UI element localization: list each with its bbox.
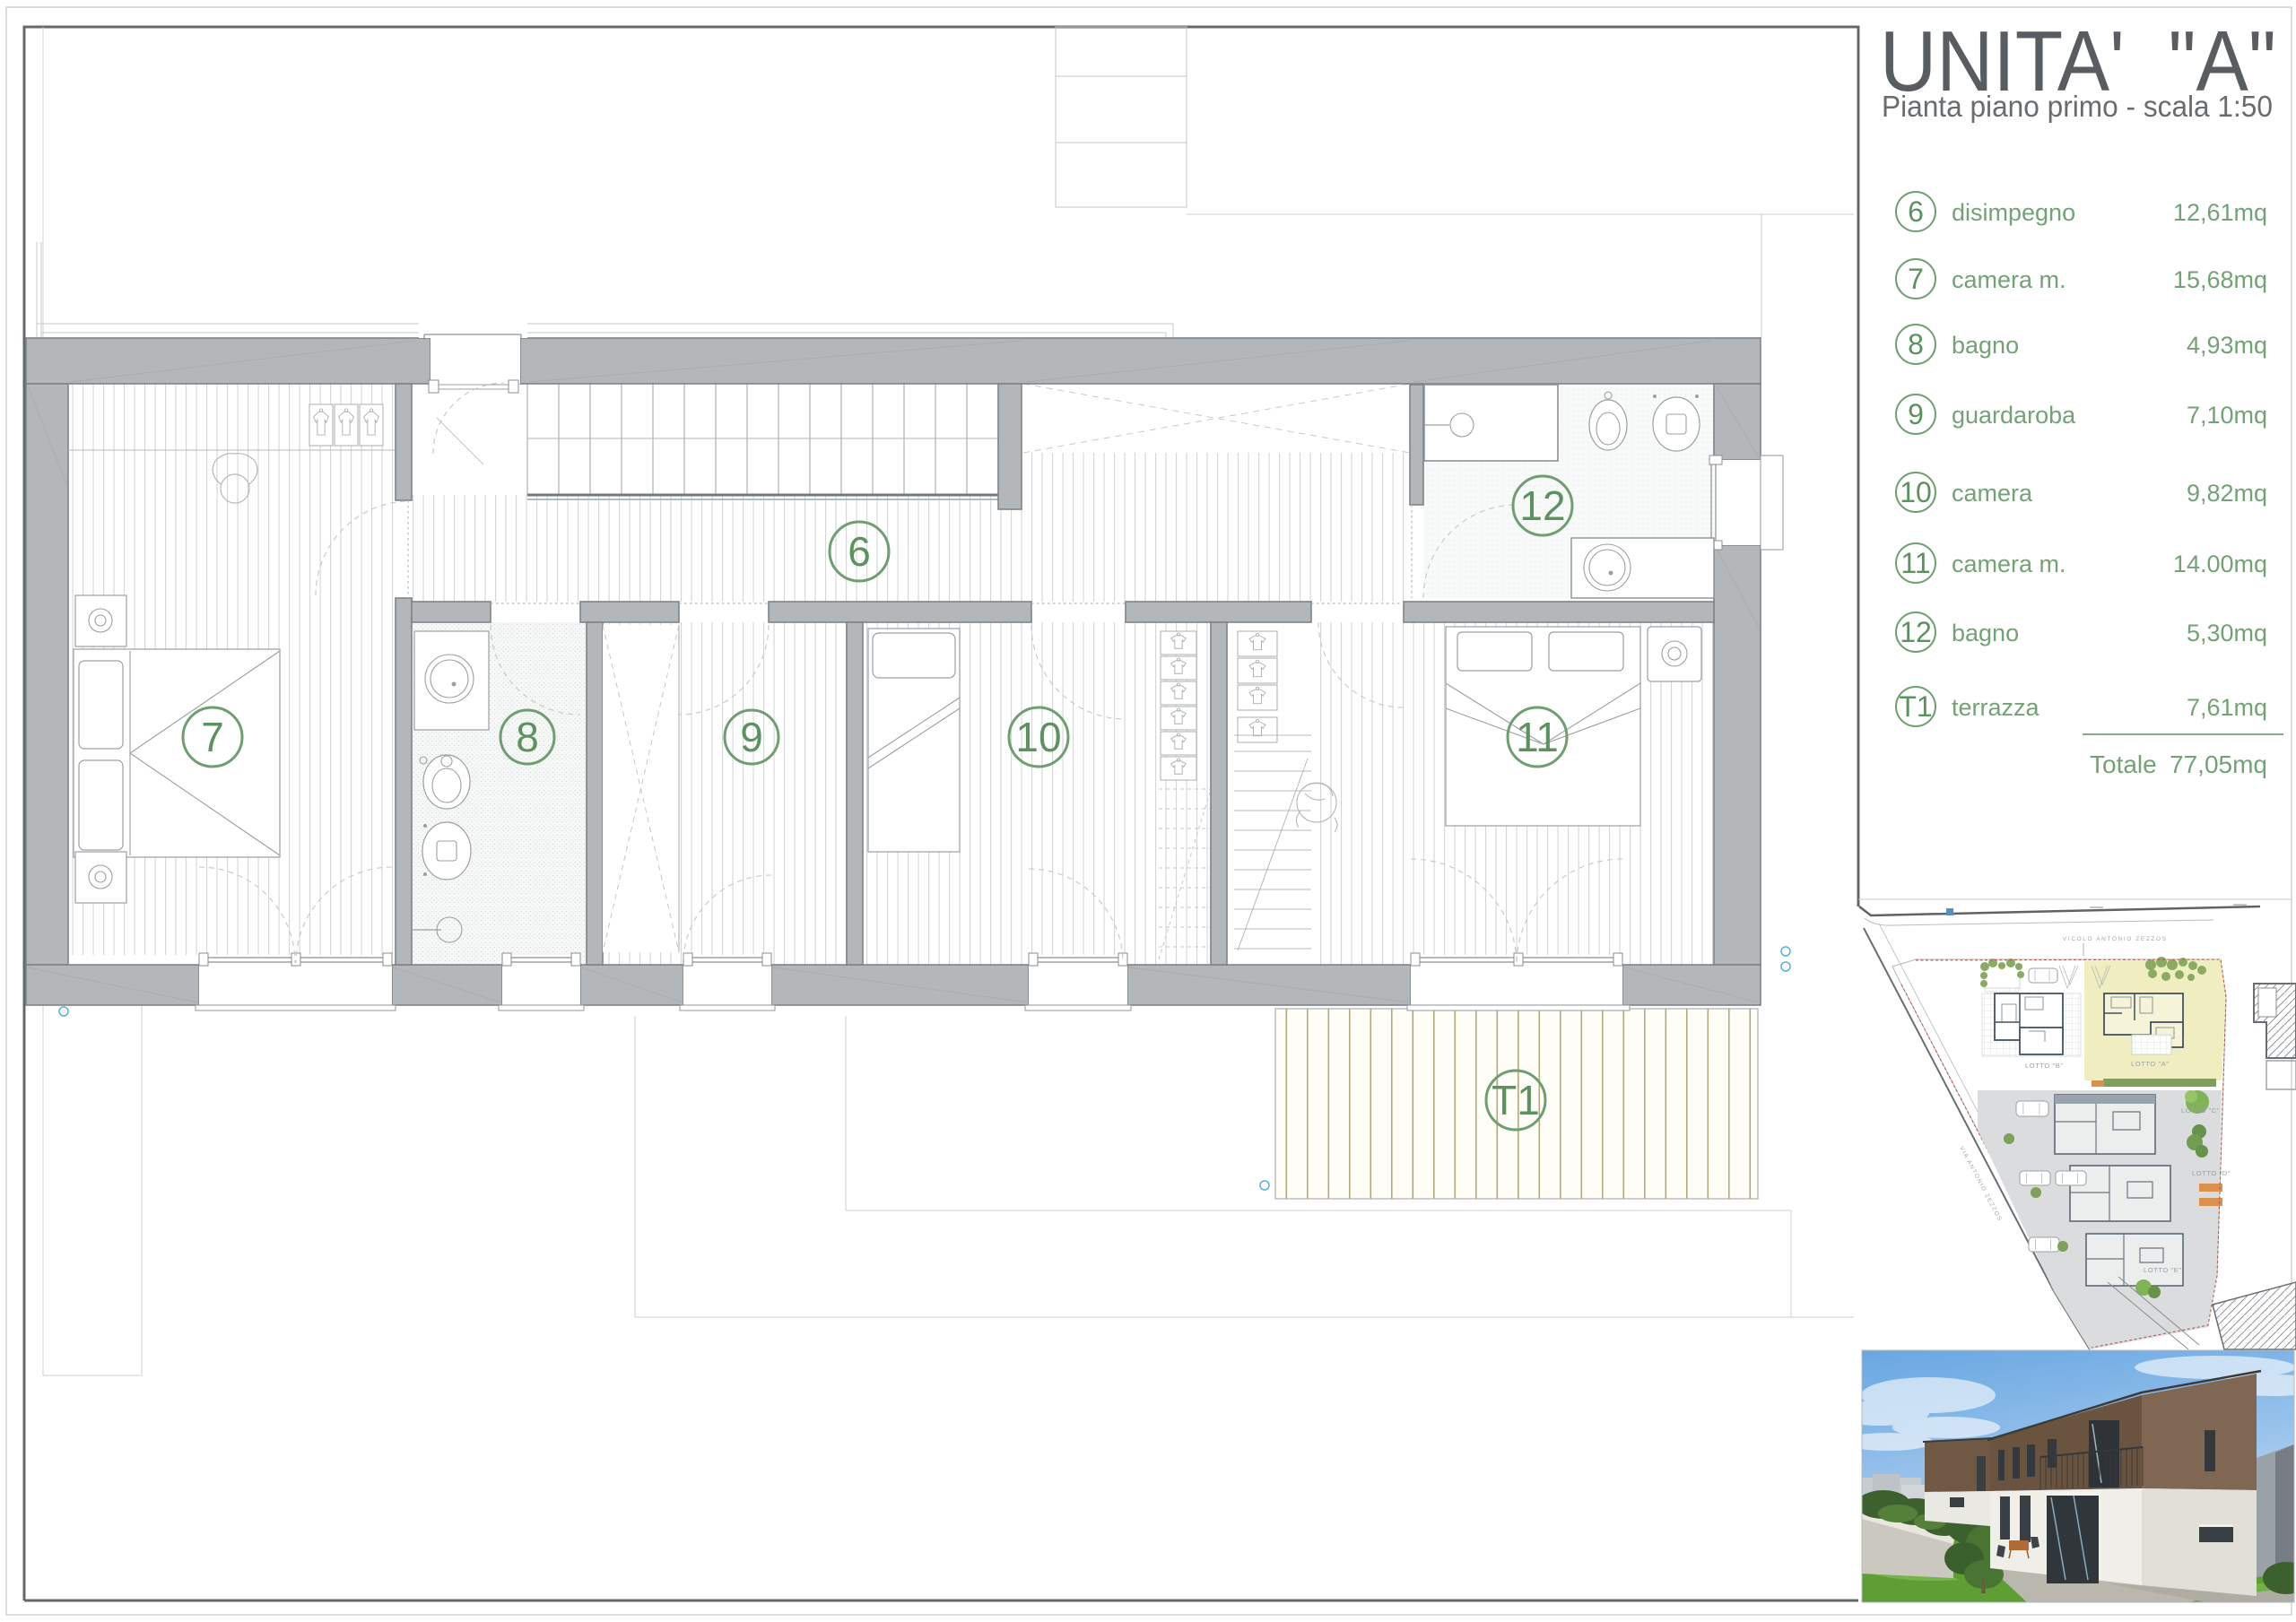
svg-text:9,82mq: 9,82mq — [2187, 480, 2267, 507]
svg-text:9: 9 — [740, 714, 763, 760]
svg-text:T1: T1 — [1492, 1077, 1540, 1123]
svg-text:LOTTO "C": LOTTO "C" — [2181, 1106, 2220, 1115]
svg-text:10: 10 — [1900, 476, 1932, 508]
svg-text:camera m.: camera m. — [1952, 266, 2066, 293]
svg-text:bagno: bagno — [1952, 620, 2019, 646]
svg-text:bagno: bagno — [1952, 332, 2019, 359]
svg-text:4,93mq: 4,93mq — [2187, 332, 2267, 359]
svg-text:VICOLO ANTONIO ZEZZOS: VICOLO ANTONIO ZEZZOS — [2063, 936, 2168, 942]
svg-text:14.00mq: 14.00mq — [2173, 551, 2267, 577]
svg-text:7: 7 — [1908, 263, 1924, 295]
svg-text:5,30mq: 5,30mq — [2187, 620, 2267, 646]
svg-text:8: 8 — [1908, 328, 1924, 360]
svg-text:8: 8 — [516, 714, 539, 760]
svg-text:Pianta piano primo - scala 1:5: Pianta piano primo - scala 1:50 — [1882, 90, 2273, 123]
svg-text:guardaroba: guardaroba — [1952, 402, 2076, 429]
svg-text:6: 6 — [848, 528, 871, 575]
svg-text:6: 6 — [1908, 195, 1924, 228]
svg-text:LOTTO "A": LOTTO "A" — [2131, 1060, 2170, 1068]
svg-text:LOTTO "E": LOTTO "E" — [2144, 1266, 2182, 1274]
svg-text:7,61mq: 7,61mq — [2187, 694, 2267, 721]
svg-text:disimpegno: disimpegno — [1952, 199, 2075, 226]
svg-text:12,61mq: 12,61mq — [2173, 199, 2267, 226]
svg-text:Totale: Totale — [2090, 750, 2157, 778]
svg-text:9: 9 — [1908, 398, 1924, 430]
svg-text:10: 10 — [1015, 714, 1061, 760]
svg-text:11: 11 — [1900, 547, 1930, 579]
svg-text:terrazza: terrazza — [1952, 694, 2040, 721]
svg-text:12: 12 — [1900, 616, 1932, 648]
svg-text:camera: camera — [1952, 480, 2033, 507]
svg-text:11: 11 — [1516, 714, 1559, 760]
svg-text:LOTTO "B": LOTTO "B" — [2025, 1062, 2064, 1070]
svg-text:camera m.: camera m. — [1952, 551, 2066, 577]
svg-text:15,68mq: 15,68mq — [2173, 266, 2267, 293]
svg-text:7: 7 — [201, 714, 224, 760]
svg-text:77,05mq: 77,05mq — [2170, 750, 2267, 778]
svg-text:7,10mq: 7,10mq — [2187, 402, 2267, 429]
svg-text:T1: T1 — [1899, 690, 1932, 723]
svg-text:12: 12 — [1519, 482, 1565, 529]
svg-text:LOTTO "D": LOTTO "D" — [2192, 1169, 2231, 1177]
